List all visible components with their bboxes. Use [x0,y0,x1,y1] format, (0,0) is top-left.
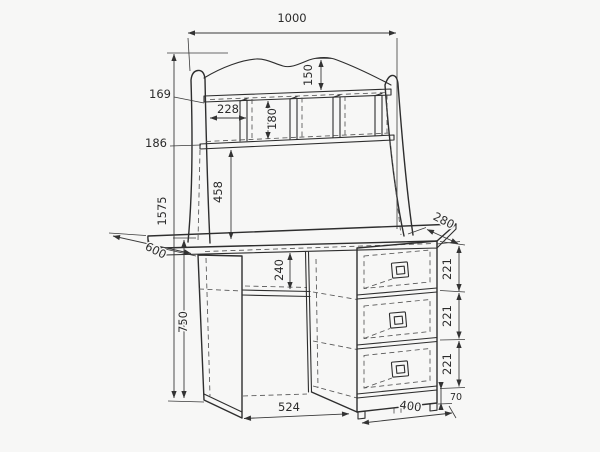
left-panel-hidden [199,258,242,396]
dim-pedestal-width: 400 [399,398,422,415]
dim-drawer-height-3: 221 [440,353,454,375]
pedestal-side-hidden-boxes [313,259,357,398]
left-side-panel [198,255,242,418]
drawer-divider-rails [357,288,437,398]
hidden-post-edges [198,141,401,241]
dim-niche-height: 240 [272,259,286,281]
dim-drawer-height-2: 221 [440,305,454,327]
dim-hutch-depth: 280 [431,209,457,231]
drawer-handle [391,361,408,377]
desktop [148,224,456,255]
crest-panel [204,58,391,85]
desktop-edge-band [148,224,456,255]
dim-divider-height: 180 [265,108,279,130]
drawer-handle [391,262,408,278]
dim-top-shelf-drop: 169 [149,87,171,101]
dim-shelf-gap: 186 [145,136,167,150]
dim-desk-height: 750 [176,311,190,333]
drawer-pedestal [312,241,438,419]
dim-drawer-height-1: 221 [440,258,454,280]
dim-desk-depth: 600 [143,239,169,261]
dim-hutch-width: 1000 [277,11,306,25]
shelf-hidden-back [243,286,307,396]
left-panel-outline [198,255,242,418]
dim-hutch-clearance: 458 [211,181,225,203]
dim-compartment-width: 228 [217,102,239,116]
dim-total-height: 1575 [155,196,169,225]
dim-kneehole-width: 524 [278,400,300,414]
shelf-dividers [240,93,387,141]
dim-crest-height: 150 [301,64,315,86]
hutch-right-post [385,75,413,236]
shelf-front [242,290,310,297]
desk-technical-drawing: 1000 150 169 186 228 180 458 1575 750 [0,0,600,452]
dimension-annotations: 1000 150 169 186 228 180 458 1575 750 [109,11,465,423]
hidden-shelf-edges [206,93,390,142]
drawer-handle [389,312,406,328]
dim-plinth-height: 70 [450,392,462,403]
pedestal-back-edge [306,252,312,392]
pedestal-side-bottom [312,392,358,412]
